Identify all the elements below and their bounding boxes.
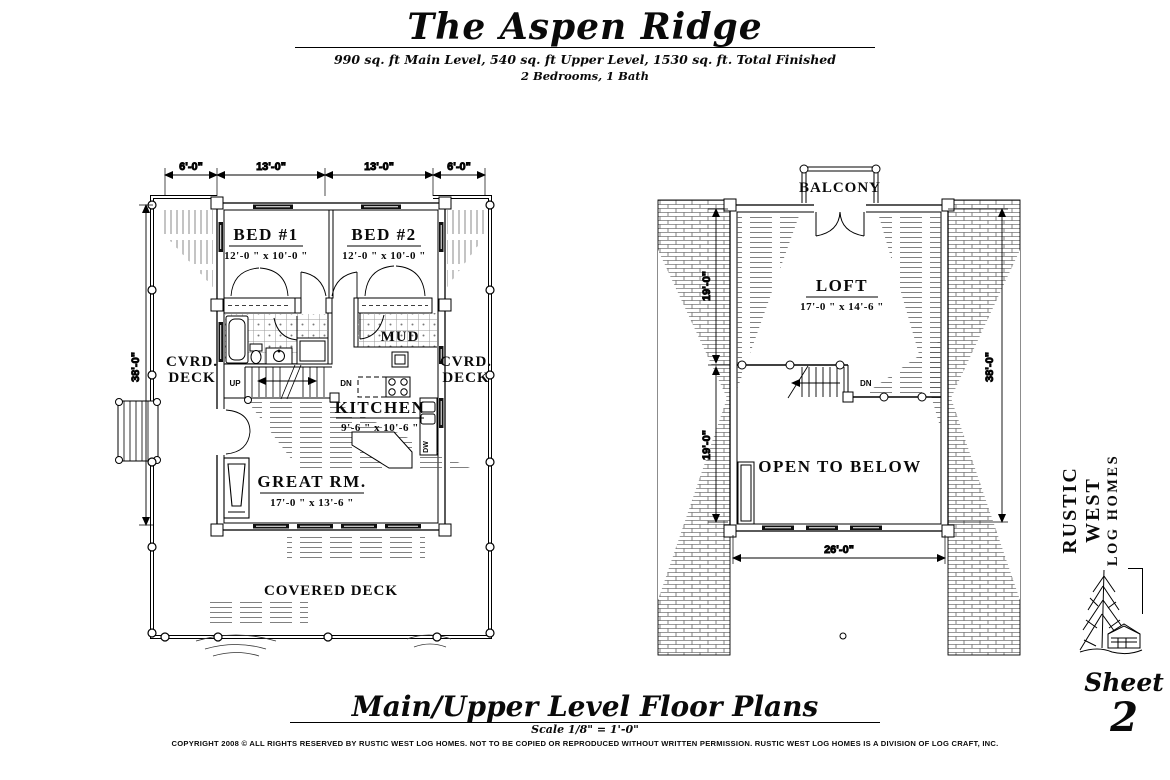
deck-hatch-bottom-left <box>205 598 308 626</box>
dim-label: 19'-0" <box>701 430 713 460</box>
pine-tree-cabin-logo-icon <box>1078 568 1144 670</box>
scale-note: Scale 1/8" = 1'-0" <box>0 723 1170 736</box>
room-size-bed2: 12'-0 " x 10'-0 " <box>342 250 426 262</box>
room-label-bed2: BED #2 <box>351 225 416 244</box>
covered-deck-label: COVERED DECK <box>264 583 398 599</box>
open-to-below-label: OPEN TO BELOW <box>758 457 921 476</box>
main-level-plan: 6'-0" 13'-0" 13'-0" 6'-0" 38'-0" BED #1 … <box>116 161 495 656</box>
room-size-loft: 17'-0 " x 14'-6 " <box>800 301 884 313</box>
brand-subname: LOG HOMES <box>1105 430 1122 590</box>
footer-title: Main/Upper Level Floor Plans <box>0 690 1170 723</box>
stairs-dn-label-upper: DN <box>860 379 872 388</box>
room-label-bed1: BED #1 <box>233 225 298 244</box>
room-size-kitchen: 9'-6 " x 10'-6 " <box>341 422 419 434</box>
dim-left: 38'-0" <box>130 205 153 525</box>
stairs-dn-label: DN <box>340 379 352 388</box>
dim-top: 6'-0" 13'-0" 13'-0" 6'-0" <box>165 161 485 196</box>
cvrd-deck-right-1: CVRD. <box>440 354 492 370</box>
dim-label: 26'-0" <box>824 544 854 556</box>
cvrd-deck-right-2: DECK <box>442 370 489 386</box>
room-label-great-room: GREAT RM. <box>257 472 366 491</box>
chimney-icon <box>738 462 754 524</box>
dim-label: 38'-0" <box>130 352 142 382</box>
room-label-kitchen: KITCHEN <box>335 398 426 417</box>
copyright-line: COPYRIGHT 2008 © ALL RIGHTS RESERVED BY … <box>0 739 1170 748</box>
deck-hatch-right <box>447 207 488 287</box>
room-size-great-room: 17'-0 " x 13'-6 " <box>270 497 354 509</box>
stairs-up-label: UP <box>229 379 241 388</box>
room-label-loft: LOFT <box>816 276 868 295</box>
brand-block: RUSTIC WEST LOG HOMES <box>1059 430 1170 590</box>
room-size-bed1: 12'-0 " x 10'-0 " <box>224 250 308 262</box>
sink-icon <box>266 348 292 364</box>
cvrd-deck-left-2: DECK <box>168 370 215 386</box>
cvrd-deck-left-1: CVRD. <box>166 354 218 370</box>
fireplace-icon <box>224 458 249 518</box>
deck-hatch-bottom <box>287 533 425 561</box>
dim-label: 19'-0" <box>701 271 713 301</box>
balcony-label: BALCONY <box>799 180 881 196</box>
dim-label: 6'-0" <box>179 161 203 173</box>
deck-entry-steps <box>116 399 161 464</box>
upper-level-plan: 19'-0" 19'-0" 38'-0" 26'-0" BALCONY LOFT… <box>658 165 1020 655</box>
dim-label: 13'-0" <box>256 161 286 173</box>
deck-post-below <box>840 633 846 639</box>
linen-closet <box>297 338 328 364</box>
toilet-icon <box>250 344 262 364</box>
dim-label: 13'-0" <box>364 161 394 173</box>
bathroom <box>224 314 332 364</box>
brand-name: RUSTIC WEST <box>1059 430 1105 590</box>
bathtub-icon <box>226 316 248 363</box>
dim-label: 6'-0" <box>447 161 471 173</box>
floor-plan-sheet: The Aspen Ridge 990 sq. ft Main Level, 5… <box>0 0 1170 780</box>
dishwasher-label: DW <box>423 441 430 453</box>
floor-plan-drawing: 6'-0" 13'-0" 13'-0" 6'-0" 38'-0" BED #1 … <box>0 0 1170 780</box>
room-label-mud: MUD <box>381 329 420 345</box>
dim-label: 38'-0" <box>984 352 996 382</box>
deck-hatch-left <box>162 207 213 287</box>
